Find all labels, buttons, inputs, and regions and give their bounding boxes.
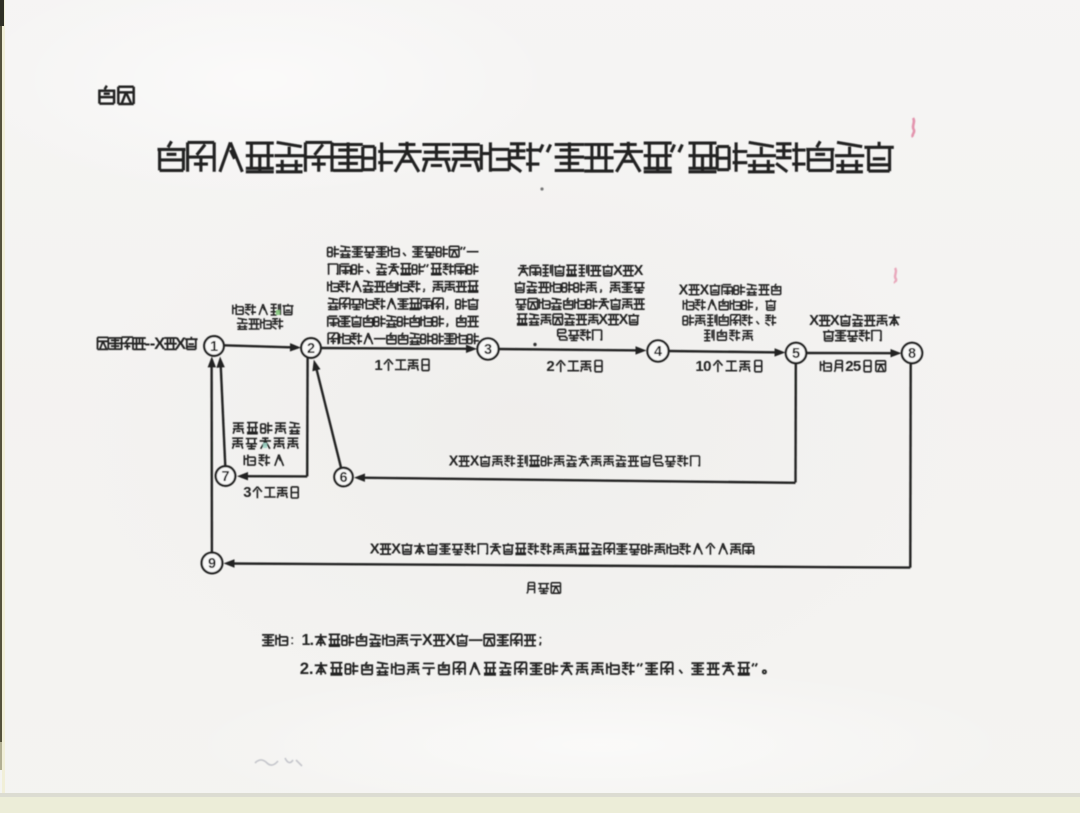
svg-text:X: X — [154, 334, 166, 353]
svg-text:2: 2 — [300, 659, 309, 678]
svg-text:3: 3 — [243, 485, 251, 501]
svg-text:X: X — [809, 312, 819, 329]
svg-text:.: . — [309, 659, 314, 678]
svg-text:X: X — [391, 542, 401, 558]
svg-text:X: X — [449, 454, 459, 470]
svg-text:4: 4 — [654, 344, 662, 360]
svg-text:X: X — [700, 282, 710, 298]
svg-text:1: 1 — [210, 339, 218, 355]
svg-text:3: 3 — [484, 342, 492, 358]
svg-text:X: X — [175, 334, 187, 353]
svg-text:9: 9 — [208, 556, 216, 572]
svg-text:X: X — [633, 263, 643, 279]
svg-text:1: 1 — [374, 357, 382, 374]
svg-text:X: X — [422, 632, 433, 649]
svg-text:X: X — [598, 312, 608, 328]
svg-text:5: 5 — [792, 346, 800, 362]
svg-text:.: . — [310, 632, 314, 649]
svg-text:X: X — [618, 312, 628, 328]
svg-text:7: 7 — [221, 469, 229, 485]
svg-text:2: 2 — [546, 358, 554, 375]
svg-text:X: X — [613, 263, 623, 279]
svg-text:X: X — [830, 312, 840, 329]
svg-text:8: 8 — [908, 346, 916, 362]
svg-text:6: 6 — [339, 470, 347, 486]
svg-text:X: X — [470, 454, 480, 470]
svg-text:X: X — [445, 632, 456, 649]
svg-text:X: X — [370, 542, 380, 558]
svg-text:0: 0 — [703, 358, 711, 375]
svg-text:X: X — [679, 282, 689, 298]
svg-text:2: 2 — [307, 341, 315, 357]
svg-text:5: 5 — [853, 358, 861, 375]
